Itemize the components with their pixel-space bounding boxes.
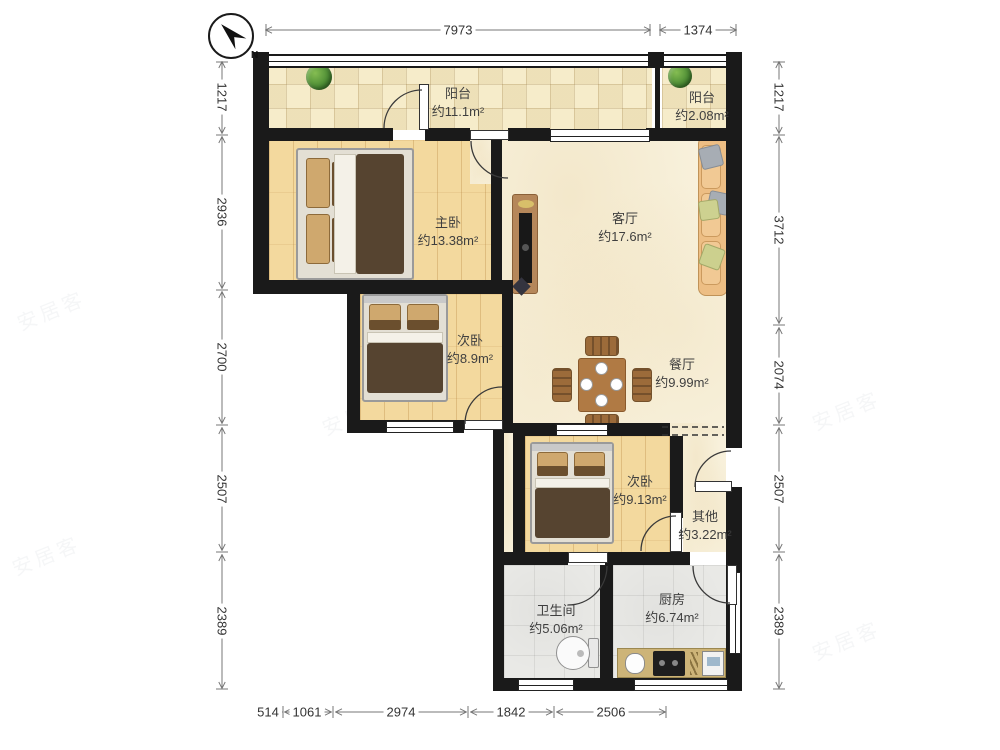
dining-chair <box>632 368 652 402</box>
wall <box>491 140 502 293</box>
bedroom2-bed <box>362 294 448 402</box>
tv-stand <box>512 194 538 294</box>
wall <box>655 60 660 130</box>
dim-label-left-5: 2389 <box>215 604 230 639</box>
watermark: 安居客 <box>807 613 885 667</box>
window <box>550 129 650 142</box>
wall <box>658 423 670 436</box>
bedroom3-bed <box>530 442 614 544</box>
dim-label-bottom-1: 514 <box>254 705 282 720</box>
wall <box>502 294 513 420</box>
dim-label-bottom-5: 2506 <box>594 705 629 720</box>
master-bed <box>296 148 414 280</box>
room-label-balcony-small: 阳台 约2.08m² <box>675 89 728 125</box>
compass-north-label: N <box>251 50 258 61</box>
wall <box>253 52 269 294</box>
room-label-living-room: 客厅 约17.6m² <box>598 210 651 246</box>
watermark: 安居客 <box>7 528 85 582</box>
dim-label-right-1: 1217 <box>772 80 787 115</box>
plate <box>595 394 608 407</box>
dim-label-top-2: 1374 <box>681 23 716 38</box>
room-label-other: 其他 约3.22m² <box>678 508 731 544</box>
door-leaf <box>464 420 503 430</box>
stove <box>653 651 685 676</box>
window <box>386 421 454 433</box>
wall <box>253 280 513 294</box>
dim-label-bottom-3: 2974 <box>384 705 419 720</box>
door-leaf <box>419 84 429 130</box>
dim-label-right-4: 2507 <box>772 472 787 507</box>
dim-label-left-4: 2507 <box>215 472 230 507</box>
dim-label-right-5: 2389 <box>772 604 787 639</box>
room-label-master-bedroom: 主卧 约13.38m² <box>418 214 479 250</box>
wall <box>493 552 568 565</box>
wall <box>508 128 550 141</box>
wall <box>605 552 690 565</box>
toilet <box>556 636 590 670</box>
wall <box>425 128 470 141</box>
watermark: 安居客 <box>12 283 90 337</box>
plate <box>610 378 623 391</box>
wall <box>730 552 742 565</box>
window <box>518 679 574 691</box>
kitchen-counter <box>617 648 726 678</box>
room-label-bathroom: 卫生间 约5.06m² <box>529 602 582 638</box>
door-leaf <box>568 552 608 563</box>
dim-label-bottom-4: 1842 <box>494 705 529 720</box>
room-label-bedroom-3: 次卧 约9.13m² <box>613 473 666 509</box>
dim-label-top-1: 7973 <box>441 23 476 38</box>
window <box>556 424 608 436</box>
dim-label-left-2: 2936 <box>215 195 230 230</box>
dim-label-left-3: 2700 <box>215 340 230 375</box>
wall <box>648 52 664 66</box>
kitchen-sink <box>625 653 645 674</box>
wall <box>253 128 393 141</box>
plate <box>580 378 593 391</box>
appliance <box>702 651 724 676</box>
room-label-dining-room: 餐厅 约9.99m² <box>655 356 708 392</box>
floor-plan: 安居客 安居客 安居客 安居客 安居客 <box>0 0 1000 750</box>
dining-chair <box>585 336 619 356</box>
wall <box>513 436 525 552</box>
room-label-bedroom-2: 次卧 约8.9m² <box>447 332 493 368</box>
wall <box>670 436 683 518</box>
dining-chair <box>552 368 572 402</box>
sofa-pillow-green <box>698 199 721 222</box>
room-label-kitchen: 厨房 约6.74m² <box>645 591 698 627</box>
utensil-rack <box>690 652 698 675</box>
window <box>634 679 728 691</box>
compass-icon: N <box>208 13 254 59</box>
dim-label-right-3: 2074 <box>772 358 787 393</box>
wall <box>726 52 742 66</box>
floor-entry-opening <box>668 423 726 436</box>
watermark: 安居客 <box>807 383 885 437</box>
wall <box>600 565 613 678</box>
floor-hallway <box>503 423 513 552</box>
wall <box>646 128 726 141</box>
plate <box>595 362 608 375</box>
door-leaf <box>695 481 732 492</box>
room-label-balcony-large: 阳台 约11.1m² <box>432 85 485 121</box>
wall <box>347 294 360 433</box>
door-leaf <box>470 130 509 140</box>
dim-label-bottom-2: 1061 <box>290 705 325 720</box>
door-leaf <box>727 565 737 605</box>
dim-label-left-1: 1217 <box>215 80 230 115</box>
dim-label-right-2: 3712 <box>772 213 787 248</box>
